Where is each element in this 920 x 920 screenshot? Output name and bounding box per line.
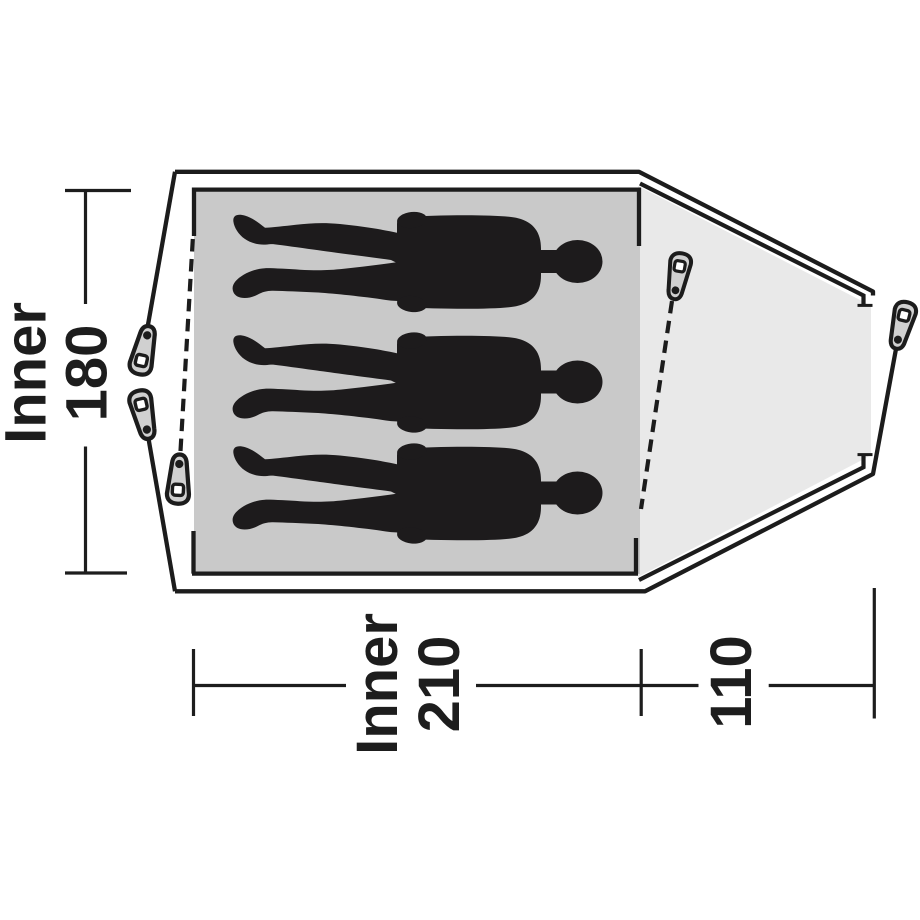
svg-text:110: 110 — [699, 635, 764, 729]
svg-text:210: 210 — [407, 636, 472, 733]
svg-text:Inner: Inner — [0, 302, 59, 444]
svg-text:180: 180 — [55, 325, 120, 422]
svg-text:Inner: Inner — [345, 613, 410, 755]
